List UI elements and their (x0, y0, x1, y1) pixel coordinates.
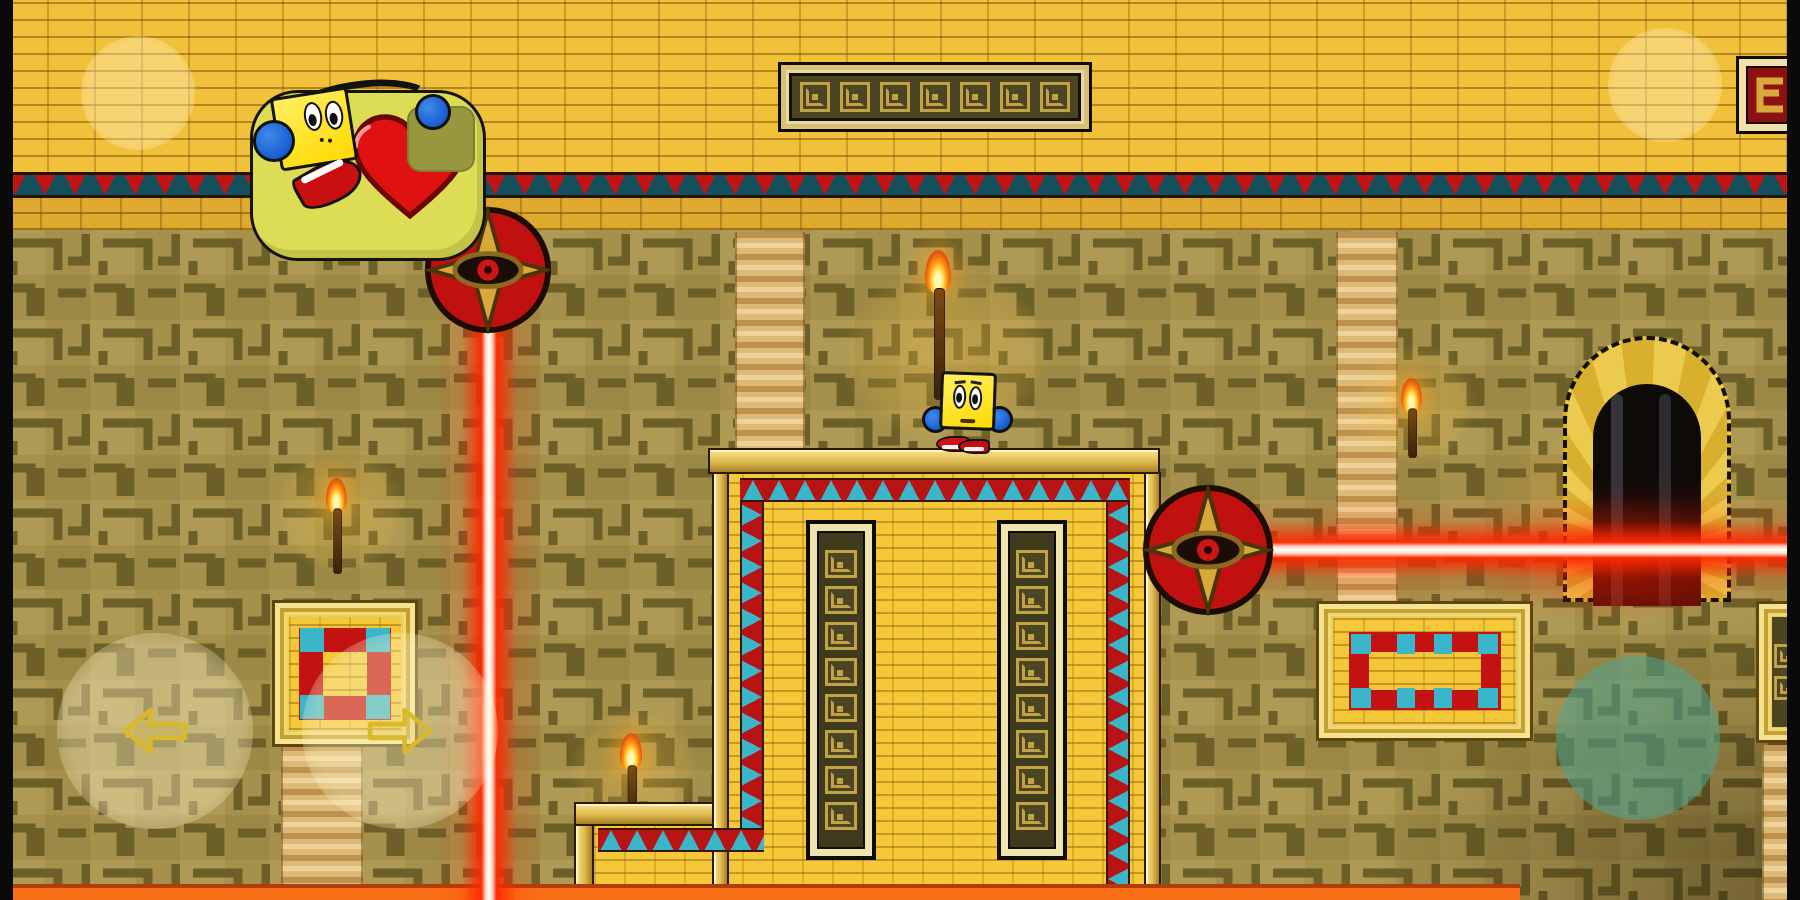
greek-key-glyph (1000, 82, 1030, 112)
teal-cell (1397, 688, 1415, 708)
monument-trim-top (740, 478, 1130, 502)
greek-key-glyph (1016, 694, 1048, 722)
greek-key-glyph (880, 82, 910, 112)
greek-key-glyph (1016, 802, 1048, 830)
ghost-button-top-right[interactable] (1608, 28, 1722, 142)
left-arrow-icon (115, 701, 195, 761)
greek-key-glyph (1016, 622, 1048, 650)
greek-key-glyph (825, 622, 857, 650)
glyph-panel-right (997, 520, 1067, 860)
sneaker (958, 439, 990, 454)
glyph-panel-left (806, 520, 876, 860)
teal-corner (1351, 688, 1371, 708)
move-left-button[interactable] (57, 633, 253, 829)
player-large (245, 80, 495, 265)
panel-glyph-column (825, 550, 857, 830)
game-viewport (0, 0, 1800, 900)
central-monument (574, 448, 1160, 900)
greek-key-glyph (825, 550, 857, 578)
monument-bricks (712, 472, 1144, 900)
greek-key-glyph (825, 766, 857, 794)
headphone-icon (415, 94, 451, 130)
banner-plaque (778, 62, 1092, 132)
teal-corner (1478, 688, 1498, 708)
step-trim (598, 828, 764, 852)
player-small-head (939, 371, 997, 431)
torch-stick (1408, 408, 1417, 458)
laser-beam-vertical (462, 268, 516, 900)
teal-corner (1351, 634, 1371, 654)
mouth (960, 419, 975, 424)
greek-key-glyph (825, 658, 857, 686)
panel-glyph-column (1016, 550, 1048, 830)
torch (326, 478, 347, 574)
rope-column (735, 232, 805, 454)
greek-key-glyph (1016, 658, 1048, 686)
teal-cell (1434, 688, 1452, 708)
teal-cell (1397, 634, 1415, 654)
edge-bar-right (1787, 0, 1800, 900)
banner-glyph-row (800, 82, 1070, 112)
greek-key-glyph (1016, 730, 1048, 758)
greek-key-glyph (800, 82, 830, 112)
greek-key-glyph (840, 82, 870, 112)
greek-key-glyph (920, 82, 950, 112)
greek-key-glyph (1016, 550, 1048, 578)
greek-key-glyph (825, 802, 857, 830)
action-button[interactable] (1556, 656, 1720, 820)
laser-beam-horizontal (1230, 522, 1800, 578)
laser-emitter-eye-icon (1142, 484, 1274, 616)
lava-floor (0, 884, 1520, 900)
greek-key-glyph (825, 694, 857, 722)
step-top-beam (574, 802, 714, 826)
torch-stick (333, 508, 342, 574)
headphone-icon (253, 120, 295, 162)
right-arrow-icon (360, 701, 440, 761)
greek-key-glyph (825, 730, 857, 758)
monument-trim-right (1106, 502, 1130, 900)
ghost-button-top-left[interactable] (81, 36, 195, 150)
move-right-button[interactable] (302, 633, 498, 829)
snake-glyph-icon (1750, 71, 1790, 119)
edge-bar-left (0, 0, 13, 900)
torch (1401, 378, 1422, 458)
monument-trim-left (740, 502, 764, 830)
greek-key-glyph (1040, 82, 1070, 112)
player-small (922, 362, 1014, 458)
greek-key-glyph (960, 82, 990, 112)
greek-key-glyph (825, 586, 857, 614)
greek-key-glyph (1016, 766, 1048, 794)
greek-key-glyph (1016, 586, 1048, 614)
teal-corner (300, 628, 324, 652)
